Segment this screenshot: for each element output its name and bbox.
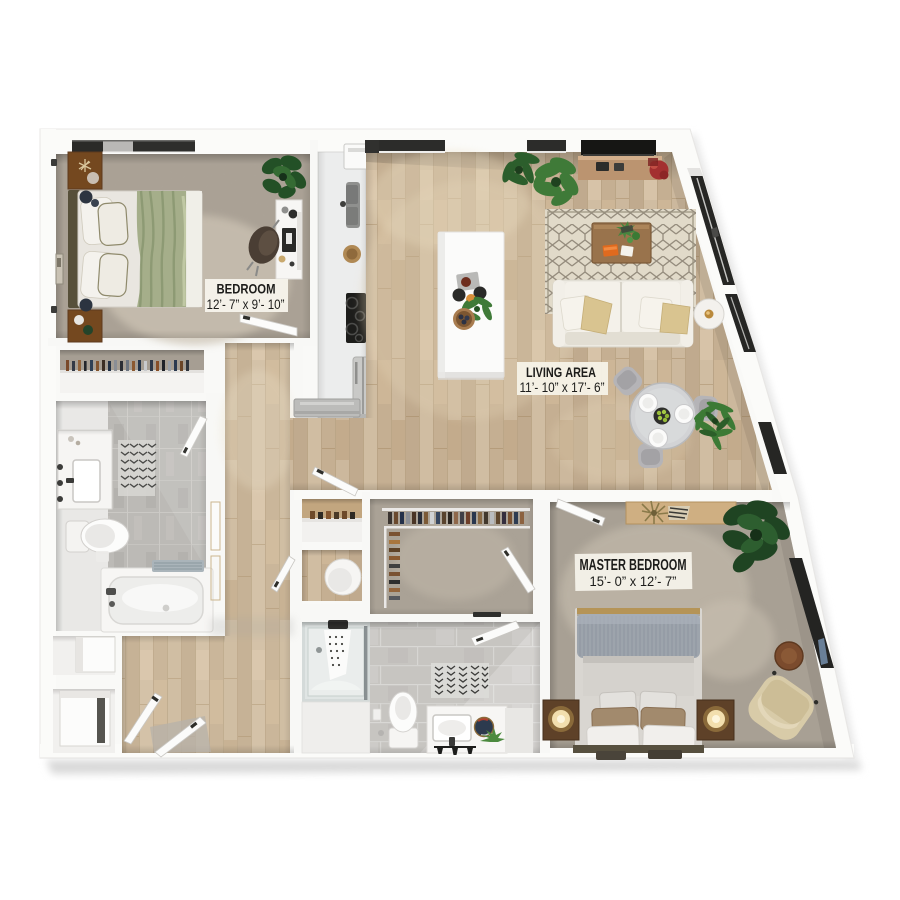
svg-text:LIVING AREA: LIVING AREA bbox=[526, 364, 596, 380]
svg-text:MASTER BEDROOM: MASTER BEDROOM bbox=[580, 557, 687, 574]
svg-text:BEDROOM: BEDROOM bbox=[217, 281, 276, 297]
svg-text:11’- 10” x 17’- 6”: 11’- 10” x 17’- 6” bbox=[520, 380, 605, 395]
svg-text:12’- 7” x 9’- 10”: 12’- 7” x 9’- 10” bbox=[207, 297, 285, 312]
svg-text:15’- 0” x 12’- 7”: 15’- 0” x 12’- 7” bbox=[590, 573, 677, 589]
